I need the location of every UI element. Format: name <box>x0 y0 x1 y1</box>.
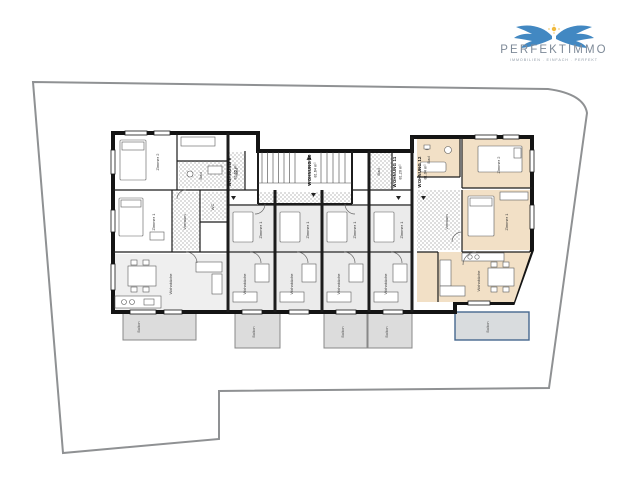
stove-icon <box>122 300 127 305</box>
unit-label: WOHNUNG 11 <box>392 156 397 187</box>
wardrobe-icon <box>181 137 215 146</box>
desk-icon <box>150 232 164 240</box>
balcony-label: Balkon <box>486 322 490 333</box>
bed-icon <box>233 212 253 242</box>
balcony-label: Balkon <box>137 322 141 333</box>
dining-table-icon <box>255 264 269 282</box>
window <box>289 310 309 314</box>
room-label: Bad <box>198 172 203 179</box>
wardrobe-icon <box>500 192 528 200</box>
apartment-highlighted <box>417 139 531 302</box>
room-label: Zimmer 1 <box>399 221 404 239</box>
bed-icon <box>280 212 300 242</box>
floor-plan-svg: Zimmer 2 Bad Zimmer 1 Vorraum WC Wohnküc… <box>0 0 640 480</box>
pillow-icon <box>470 198 492 206</box>
pillow-icon <box>121 200 141 207</box>
unit-area: 81.65 m² <box>234 164 238 180</box>
room-label: Bad <box>426 156 431 163</box>
sink-icon <box>187 171 193 177</box>
unit-label: WOHNUNG 10 <box>307 154 312 186</box>
pillow-icon <box>122 142 144 150</box>
sofa-icon <box>440 260 451 286</box>
room-label: Zimmer 2 <box>496 156 501 174</box>
pillow-icon <box>514 148 521 158</box>
balcony <box>324 312 367 348</box>
dining-table-icon <box>393 264 407 282</box>
toilet-icon <box>424 145 430 150</box>
sofa-icon <box>196 262 222 272</box>
unit-area: 81.04 m² <box>424 164 428 180</box>
chair-icon <box>143 260 149 265</box>
stove-icon <box>475 255 479 259</box>
sink-icon <box>445 147 452 154</box>
room-bad-floor <box>370 152 392 189</box>
window <box>111 150 115 174</box>
room-label: Zimmer 1 <box>258 221 263 239</box>
window <box>530 150 534 172</box>
chair-icon <box>131 260 137 265</box>
window <box>111 264 115 290</box>
entry-hall-floor <box>258 192 352 204</box>
room-label: Wohnküche <box>336 273 341 295</box>
balconies <box>123 312 529 348</box>
balcony <box>123 312 196 340</box>
window <box>468 301 490 305</box>
window <box>111 210 115 232</box>
chair-icon <box>143 287 149 292</box>
logo-star-icon <box>552 27 556 31</box>
chair-icon <box>491 262 497 267</box>
room-label: Zimmer 1 <box>504 213 509 231</box>
window <box>164 310 182 314</box>
chair-icon <box>503 262 509 267</box>
window <box>383 310 403 314</box>
stove-icon <box>468 255 472 259</box>
window <box>336 310 356 314</box>
window <box>530 205 534 229</box>
balcony <box>368 312 412 348</box>
unit-area: 81.64 m² <box>314 162 318 178</box>
company-logo: PERFEKTIMMO IMMOBILIEN . EINFACH . PERFE… <box>500 24 607 62</box>
chair-icon <box>503 287 509 292</box>
unit-area: 81.20 m² <box>399 164 403 180</box>
room-label: WC <box>210 204 215 211</box>
balcony <box>235 312 280 348</box>
window <box>503 135 519 139</box>
dining-table-icon <box>488 268 514 286</box>
room-label: Wohnküche <box>289 273 294 295</box>
room-label: Zimmer 2 <box>155 153 160 171</box>
room-label: Wohnküche <box>242 273 247 295</box>
window <box>242 310 262 314</box>
dining-table-icon <box>302 264 316 282</box>
room-label: Vorraum <box>182 214 187 230</box>
logo-brand-text: PERFEKTIMMO <box>500 44 607 56</box>
balcony-label: Balkon <box>341 327 345 338</box>
chair-icon <box>491 287 497 292</box>
bed-icon <box>374 212 394 242</box>
balcony-label: Balkon <box>385 327 389 338</box>
window <box>475 135 497 139</box>
dining-table-icon <box>349 264 363 282</box>
room-label: Zimmer 1 <box>151 213 156 231</box>
sofa-icon <box>212 274 222 294</box>
balcony-label: Balkon <box>252 327 256 338</box>
floor-plan-page: Zimmer 2 Bad Zimmer 1 Vorraum WC Wohnküc… <box>0 0 640 480</box>
room-label: Zimmer 1 <box>352 221 357 239</box>
dining-table-icon <box>128 266 156 286</box>
stove-icon <box>130 300 135 305</box>
unit-label: WOHNUNG 9 <box>227 157 232 186</box>
room-label: Wohnküche <box>383 273 388 295</box>
bed-icon <box>327 212 347 242</box>
bathtub-icon <box>208 166 222 174</box>
chair-icon <box>131 287 137 292</box>
window <box>130 310 156 314</box>
room-label: Bad <box>376 168 381 175</box>
room-label: Wohnküche <box>476 270 481 292</box>
room-label: Wohnküche <box>168 273 173 295</box>
window <box>125 131 147 135</box>
room-label: Zimmer 1 <box>305 221 310 239</box>
window <box>154 131 170 135</box>
sink-icon <box>144 299 154 305</box>
sofa-icon <box>440 286 465 296</box>
logo-tagline-text: IMMOBILIEN . EINFACH . PERFEKT <box>510 58 598 62</box>
room-label: Vorraum <box>444 214 449 230</box>
unit-label: WOHNUNG 12 <box>417 156 422 188</box>
balcony-highlighted <box>455 312 529 340</box>
